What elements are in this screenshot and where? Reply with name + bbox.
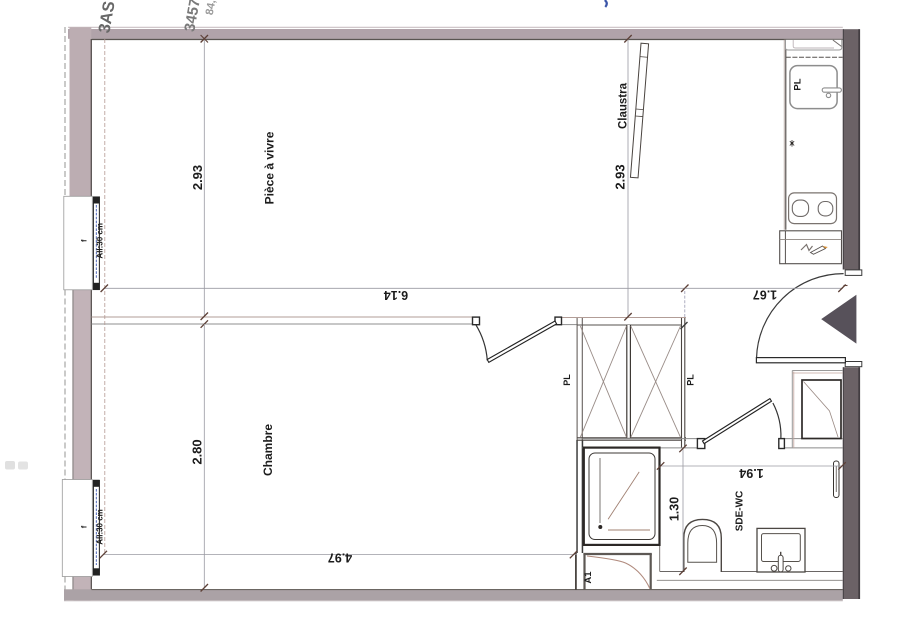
svg-text:2.93: 2.93 <box>190 165 205 190</box>
svg-text:Chambre: Chambre <box>261 424 275 476</box>
svg-text:PL: PL <box>793 78 804 90</box>
svg-text:All:30 cm: All:30 cm <box>96 223 105 259</box>
svg-text:1.94: 1.94 <box>739 466 763 480</box>
svg-text:2.80: 2.80 <box>190 439 205 464</box>
svg-text:PL: PL <box>562 374 572 386</box>
svg-text:4.97: 4.97 <box>328 551 352 565</box>
svg-text:6.14: 6.14 <box>384 288 408 302</box>
svg-text:Pièce à vivre: Pièce à vivre <box>263 131 277 204</box>
svg-text:All:30 cm: All:30 cm <box>96 509 105 545</box>
svg-text:A1: A1 <box>583 571 594 584</box>
svg-text:1.30: 1.30 <box>668 497 682 521</box>
svg-text:PL: PL <box>686 374 696 386</box>
svg-text:SDE-WC: SDE-WC <box>735 491 746 532</box>
svg-text:2.93: 2.93 <box>613 164 628 189</box>
svg-text:1.67: 1.67 <box>753 287 777 301</box>
